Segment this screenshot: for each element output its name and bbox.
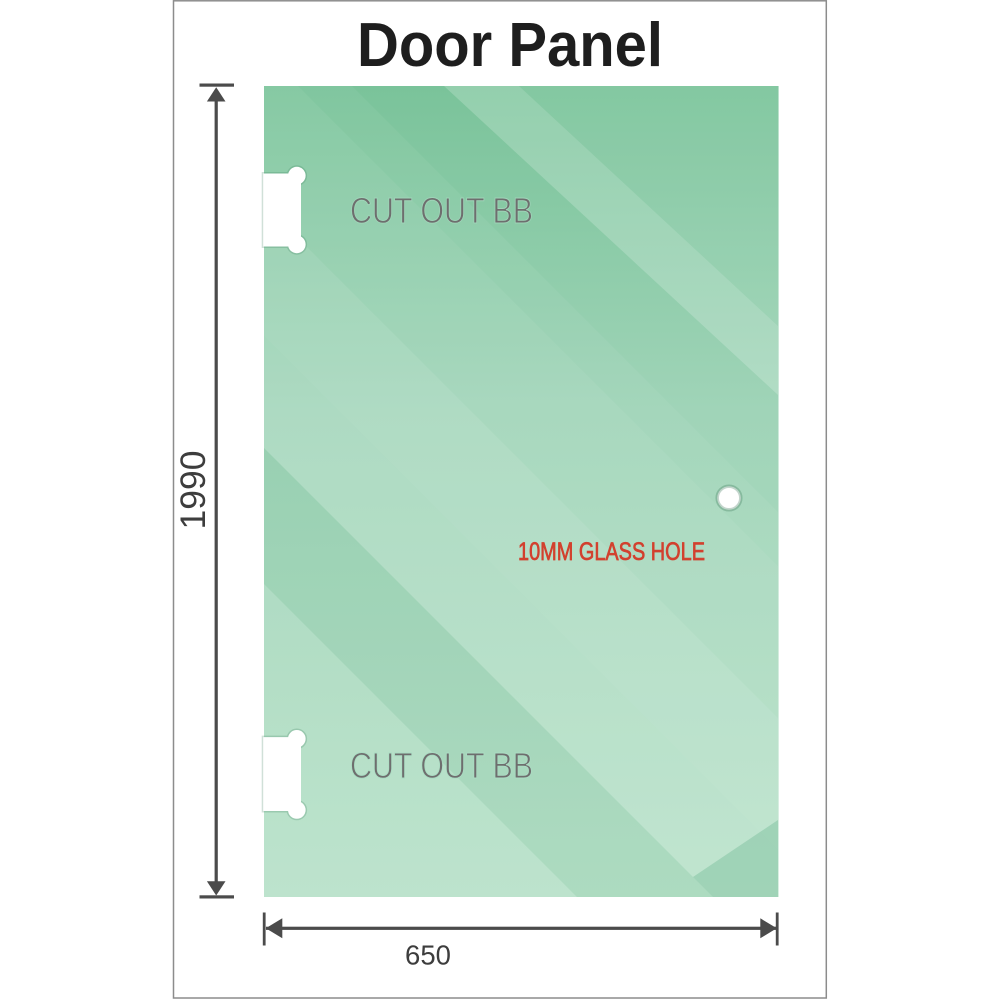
svg-text:CUT OUT BB: CUT OUT BB xyxy=(350,745,533,786)
svg-text:Door Panel: Door Panel xyxy=(357,11,663,80)
svg-text:CUT OUT BB: CUT OUT BB xyxy=(350,190,533,231)
svg-text:1990: 1990 xyxy=(173,451,213,530)
svg-text:10MM GLASS HOLE: 10MM GLASS HOLE xyxy=(518,538,705,566)
svg-text:650: 650 xyxy=(405,940,451,971)
